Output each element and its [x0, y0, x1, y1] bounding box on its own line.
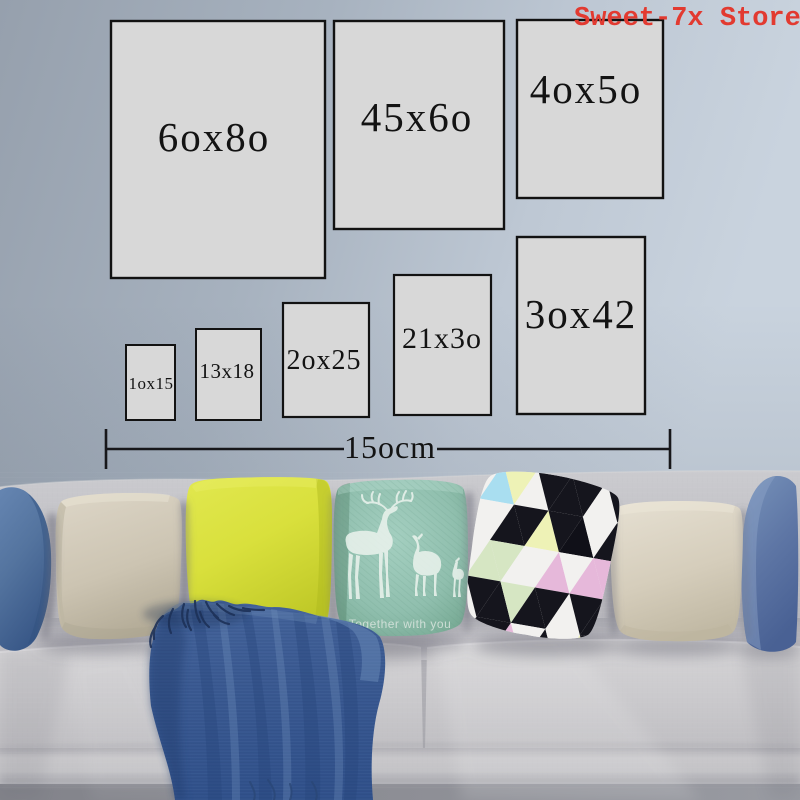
svg-text:15ocm: 15ocm	[344, 429, 436, 465]
svg-text:45x6o: 45x6o	[361, 94, 474, 140]
svg-text:1ox15: 1ox15	[129, 374, 174, 393]
svg-text:13x18: 13x18	[200, 359, 255, 383]
svg-text:Sweet-7x Store: Sweet-7x Store	[574, 4, 800, 34]
svg-text:21x3o: 21x3o	[402, 322, 482, 355]
svg-text:3ox42: 3ox42	[525, 291, 638, 337]
svg-text:6ox8o: 6ox8o	[158, 114, 271, 160]
svg-text:2ox25: 2ox25	[287, 345, 362, 376]
svg-text:4ox5o: 4ox5o	[530, 66, 643, 112]
